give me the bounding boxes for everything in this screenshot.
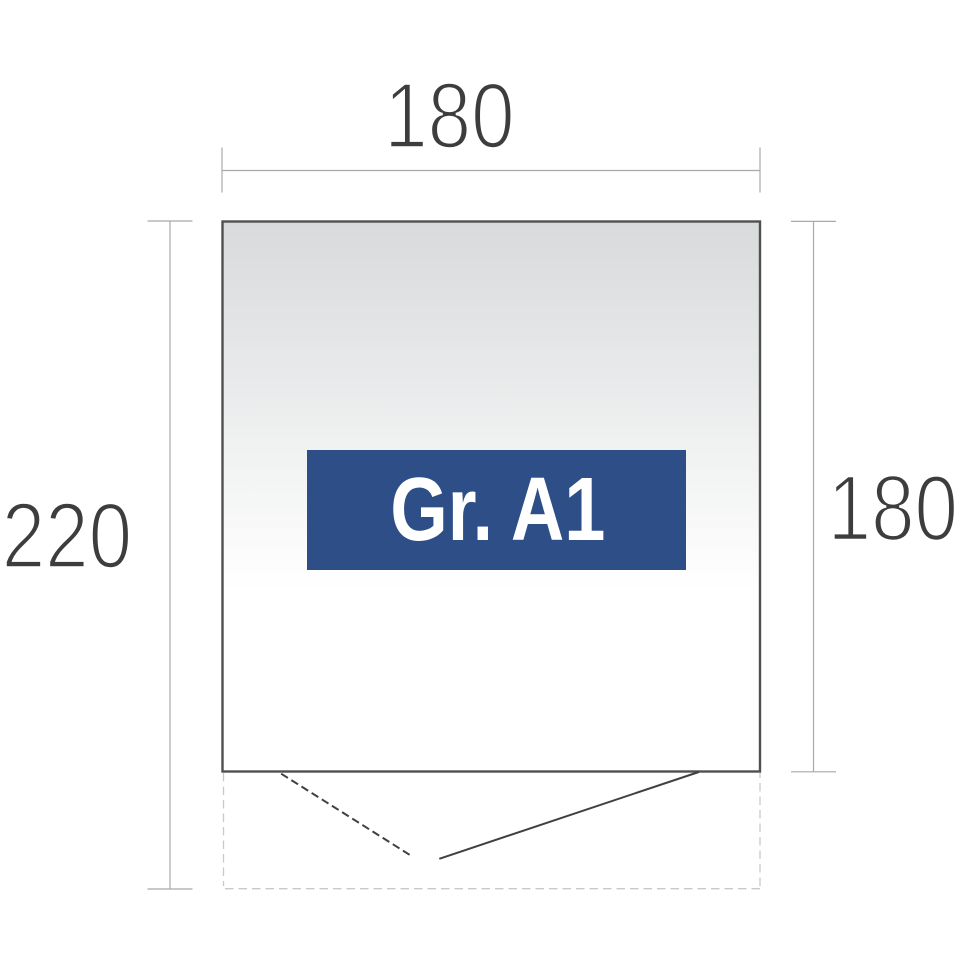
- svg-text:220: 220: [2, 484, 132, 588]
- svg-text:180: 180: [384, 64, 514, 168]
- svg-text:Gr. A1: Gr. A1: [390, 459, 605, 560]
- svg-text:180: 180: [828, 457, 958, 561]
